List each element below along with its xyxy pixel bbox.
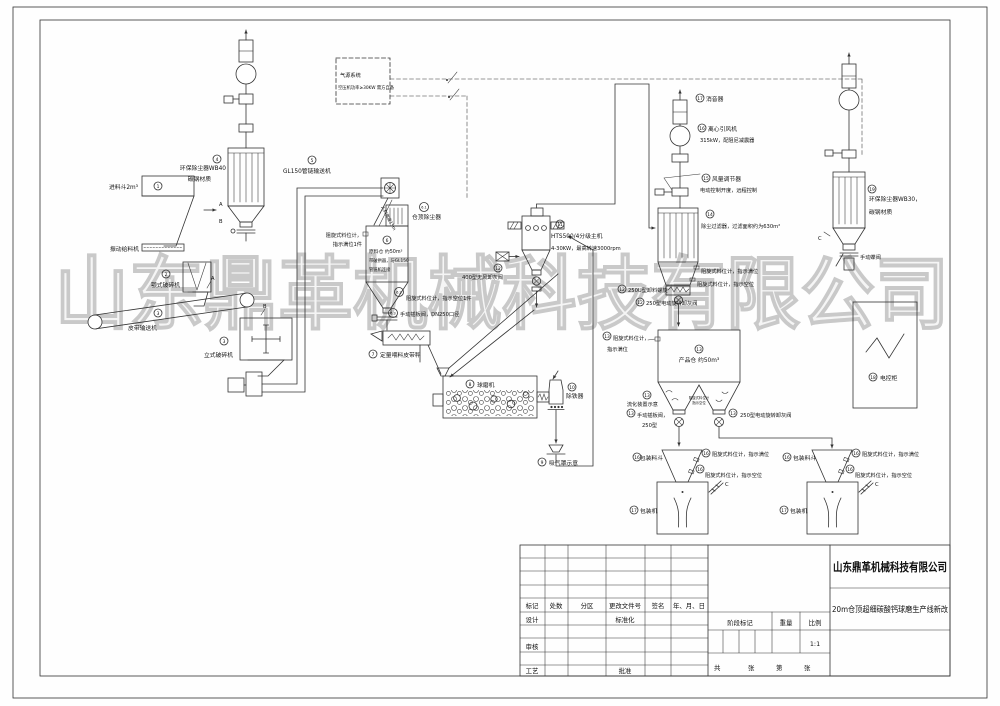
pack-hopper-l-label: 包装料斗 (640, 454, 663, 462)
outer-border (13, 7, 987, 698)
silencer-label: 消音器 (706, 95, 724, 103)
tb-process: 工艺 (526, 667, 539, 675)
num-jaw-crusher: 2 (165, 272, 168, 278)
num-silo-gate-valve: 6.3 (390, 312, 395, 316)
tb-review: 审核 (526, 642, 539, 651)
num-pack-hopper-r: 16 (784, 455, 790, 461)
chute-note: 入料高度15m (379, 205, 398, 232)
num-feed-hopper: 1 (157, 184, 160, 190)
ps-level-full-label-1: 阻旋式料位计， (613, 334, 649, 342)
damper-label-2: 电动控制开度，远程控制 (700, 186, 757, 194)
tb-header-sign: 签名 (652, 601, 665, 610)
air-system-title: 气源系统 (340, 71, 361, 79)
num-cabinet: 18 (870, 375, 876, 381)
ash-valve-label: 400型无风卸灰阀 (462, 273, 503, 281)
pack-lvl-empty-l-label: 阻旋式料位计，指示空位 (705, 471, 762, 479)
pack-machine-r-label: 包装机 (790, 507, 808, 515)
tb-sheet2: 张 (804, 663, 811, 672)
raw-silo-label-1: 原料仓 约50m³ (369, 248, 402, 255)
num-ball-mill: 8 (469, 382, 472, 388)
butterfly-valve-label: 手动蝶阀 (860, 253, 881, 261)
tb-weight: 重量 (780, 619, 793, 627)
ps-level-empty-label-2: 指示空位 (692, 400, 706, 405)
num-belt-scale: 7 (372, 352, 375, 358)
inner-border (40, 20, 950, 676)
ball-mill: 8 球磨机 (433, 368, 537, 418)
num-pack-lvl-full-l: 16 (703, 451, 709, 457)
num-rotary-valve: 12 (637, 300, 643, 306)
num-ps-gate: 13 (628, 411, 634, 417)
section-marker-a: A (211, 276, 215, 282)
iron-remover-label: 除铁器 (566, 392, 584, 400)
num-screw: 12 (619, 287, 625, 293)
fluidizer-label: 流化装置示意 (627, 400, 658, 408)
pack-right-marker-c: C (875, 482, 879, 488)
tb-total: 共 (714, 663, 721, 672)
product-silo-label: 产品仓 约50m³ (679, 356, 720, 364)
duct-to-filter (537, 84, 656, 228)
tb-stage-mark: 阶段标记 (727, 618, 753, 627)
screw-label: 250U型卸料螺旋 (628, 286, 668, 294)
wb30-label-1: 环保除尘器WB30， (869, 195, 921, 203)
num-pack-machine-r: 17 (781, 508, 787, 514)
silo-top-dc-label: 仓顶除尘器 (412, 213, 441, 221)
tb-scale-value: 1:1 (810, 640, 820, 648)
tb-scale: 比例 (809, 618, 822, 627)
filter-label: 除尘过滤器，过滤面积约为630m² (701, 222, 780, 230)
wb30-dust-collector: 手动蝶阀 19 环保除尘器WB30， 碳钢材质 C (818, 53, 921, 270)
ps-level-empty-label-1: 阻旋式料位计 (689, 395, 710, 400)
num-ps-level: 13 (604, 334, 610, 340)
num-vertical-crusher: 3 (223, 339, 226, 345)
fan-label-1: 离心引风机 (708, 125, 737, 133)
damper-label-1: 风量调节器 (712, 175, 741, 183)
num-classifier: 11 (557, 222, 563, 228)
drawing-canvas: 山东鼎革机械科技有限公司 1 进料斗2m³ 振动给料机 2 颚式破碎机 A 3 … (0, 0, 1000, 706)
num-silo-top-dc: 6.1 (421, 206, 426, 210)
num-filter: 14 (707, 212, 713, 218)
pack-lvl-full-l-label: 阻旋式料位计，指示满位 (712, 450, 769, 458)
raw-silo-label-2: 带破拱器，与GL150 (369, 257, 409, 264)
vertical-crusher-label: 立式破碎机 (204, 351, 233, 359)
tb-header-mark: 标记 (526, 601, 539, 610)
air-system-note: 空压机功率≥30KW 需方自备 (338, 84, 395, 91)
duct-marker-b: B (219, 219, 223, 225)
tb-header-docno: 更改文件号 (609, 601, 641, 610)
num-gl150: 5 (311, 158, 314, 164)
num-pack-machine-l: 17 (631, 508, 637, 514)
vibrating-feeder-label: 振动给料机 (110, 245, 139, 253)
num-wb40: 4 (216, 157, 219, 163)
pack-lvl-full-r-label: 阻旋式料位计，指示满位 (862, 450, 919, 458)
title-block: 标记 处数 分区 更改文件号 签名 年、月、日 设计 标准化 审核 工艺 批准 … (520, 545, 950, 676)
wb30-label-2: 碳钢材质 (869, 208, 892, 216)
tb-page: 第 (776, 663, 783, 672)
num-iron-remover: 10 (569, 385, 575, 391)
rotary-valve-label: 250型电动旋转卸灰阀 (646, 299, 697, 307)
num-damper: 15 (703, 176, 709, 182)
gl150-label: GL150管链输送机 (283, 167, 331, 175)
section-marker-b: B (263, 304, 267, 310)
tb-design: 设计 (526, 615, 539, 624)
num-ash-valve: 12 (495, 266, 501, 272)
duct-marker-a: A (219, 202, 223, 208)
tb-standardize: 标准化 (615, 615, 635, 624)
fan-label-2: 315kW，配阻尼减震器 (700, 136, 755, 144)
num-pack-lvl-full-r: 16 (853, 451, 859, 457)
cad-process-flow-drawing: 山东鼎革机械科技有限公司 1 进料斗2m³ 振动给料机 2 颚式破碎机 A 3 … (0, 0, 1000, 706)
tb-header-count: 处数 (550, 601, 563, 610)
classifier-label-2: 4-30KW，最高转速3000rpm (551, 244, 621, 252)
pack-lvl-empty-r-label: 阻旋式料位计，指示空位 (855, 471, 912, 479)
ps-gate-label-2: 250型 (642, 421, 657, 429)
packing-station-left: C 16 包装料斗 16 阻旋式料位计，指示满位 16 阻旋式料位计，指示空位 … (630, 449, 769, 534)
product-silo: 13 阻旋式料位计， 指示满位 13 产品仓 约50m³ 阻旋式料位计 指示空位… (603, 330, 832, 448)
fan-stack: 17 消音器 16 离心引风机 315kW，配阻尼减震器 15 风量调节器 电动… (655, 90, 757, 208)
num-product-silo: 13 (696, 347, 702, 353)
feed-hopper-label: 进料斗2m³ (109, 183, 139, 191)
num-silencer: 17 (697, 96, 703, 102)
silo-level-full-label-2: 指示满位1件 (333, 240, 362, 248)
ball-mill-label: 球磨机 (477, 381, 495, 389)
num-wb30: 19 (869, 187, 875, 193)
jaw-crusher-label: 颚式破碎机 (151, 281, 180, 289)
silo-level-empty-label: 阻旋式料位计，指示空位1件 (406, 294, 472, 302)
num-fan: 16 (699, 126, 705, 132)
ps-rotary-r-label: 250型电动旋转卸灰阀 (740, 411, 791, 419)
pack-machine-l-label: 包装机 (640, 507, 658, 515)
num-pack-lvl-empty-r: 16 (847, 467, 853, 473)
wb40-label-1: 环保除尘器WB40 (180, 164, 226, 172)
tb-drawing-title: 20m仓顶超细碳酸钙球磨生产线新改 (832, 604, 948, 614)
tb-header-zone: 分区 (581, 601, 594, 610)
pack-left-marker-c: C (725, 482, 729, 488)
feed-hopper: 1 进料斗2m³ (109, 176, 194, 246)
wb30-marker-c: C (818, 236, 822, 242)
tb-sheet1: 张 (748, 663, 755, 672)
num-ps-rotary-r: 13 (730, 411, 736, 417)
raw-silo-label-3: 管链机连接 (369, 266, 391, 273)
classifier-label-1: HTS500/4分级主机 (551, 232, 603, 240)
cabinet-label: 电控柜 (880, 374, 898, 382)
num-pack-lvl-empty-l: 16 (697, 467, 703, 473)
num-silo-level-empty: 6.2 (396, 291, 401, 295)
ps-gate-label-1: 手动插板阀， (637, 411, 668, 419)
silo-gate-valve-label: 手动插板阀，DN250口径 (400, 310, 459, 318)
wb40-label-2: 碳钢材质 (188, 175, 211, 183)
packing-station-right: C 16 包装料斗 16 阻旋式料位计，指示满位 16 阻旋式料位计，指示空位 … (780, 449, 919, 534)
silo-level-full-label-1: 阻旋式料位计， (326, 231, 362, 239)
wb40-dust-collector: 4 环保除尘器WB40 碳钢材质 A B (180, 30, 264, 241)
num-suction-hood: 9 (541, 460, 544, 466)
num-belt-conveyor: 3 (157, 311, 160, 317)
belt-conveyor-label: 皮带输送机 (128, 324, 157, 332)
num-raw-silo: 6 (386, 238, 389, 244)
belt-scale-label: 定量喂料皮带秤 (380, 351, 421, 359)
tb-header-date: 年、月、日 (673, 601, 705, 610)
filter-level-empty-label: 阻旋式料位计，指示空位 (697, 280, 754, 288)
filter-level-full-label: 阻旋式料位计，指示满位 (701, 267, 758, 275)
iron-remover: 10 除铁器 (537, 371, 584, 410)
ps-level-full-label-2: 指示满位 (607, 345, 628, 353)
pack-hopper-r-label: 包装料斗 (793, 454, 816, 462)
air-source-system: 气源系统 空压机功率≥30KW 需方自备 (336, 58, 862, 198)
tb-company: 山东鼎革机械科技有限公司 (833, 560, 947, 574)
tb-approve: 批准 (619, 666, 632, 675)
num-fluidizer: 13 (644, 393, 650, 399)
